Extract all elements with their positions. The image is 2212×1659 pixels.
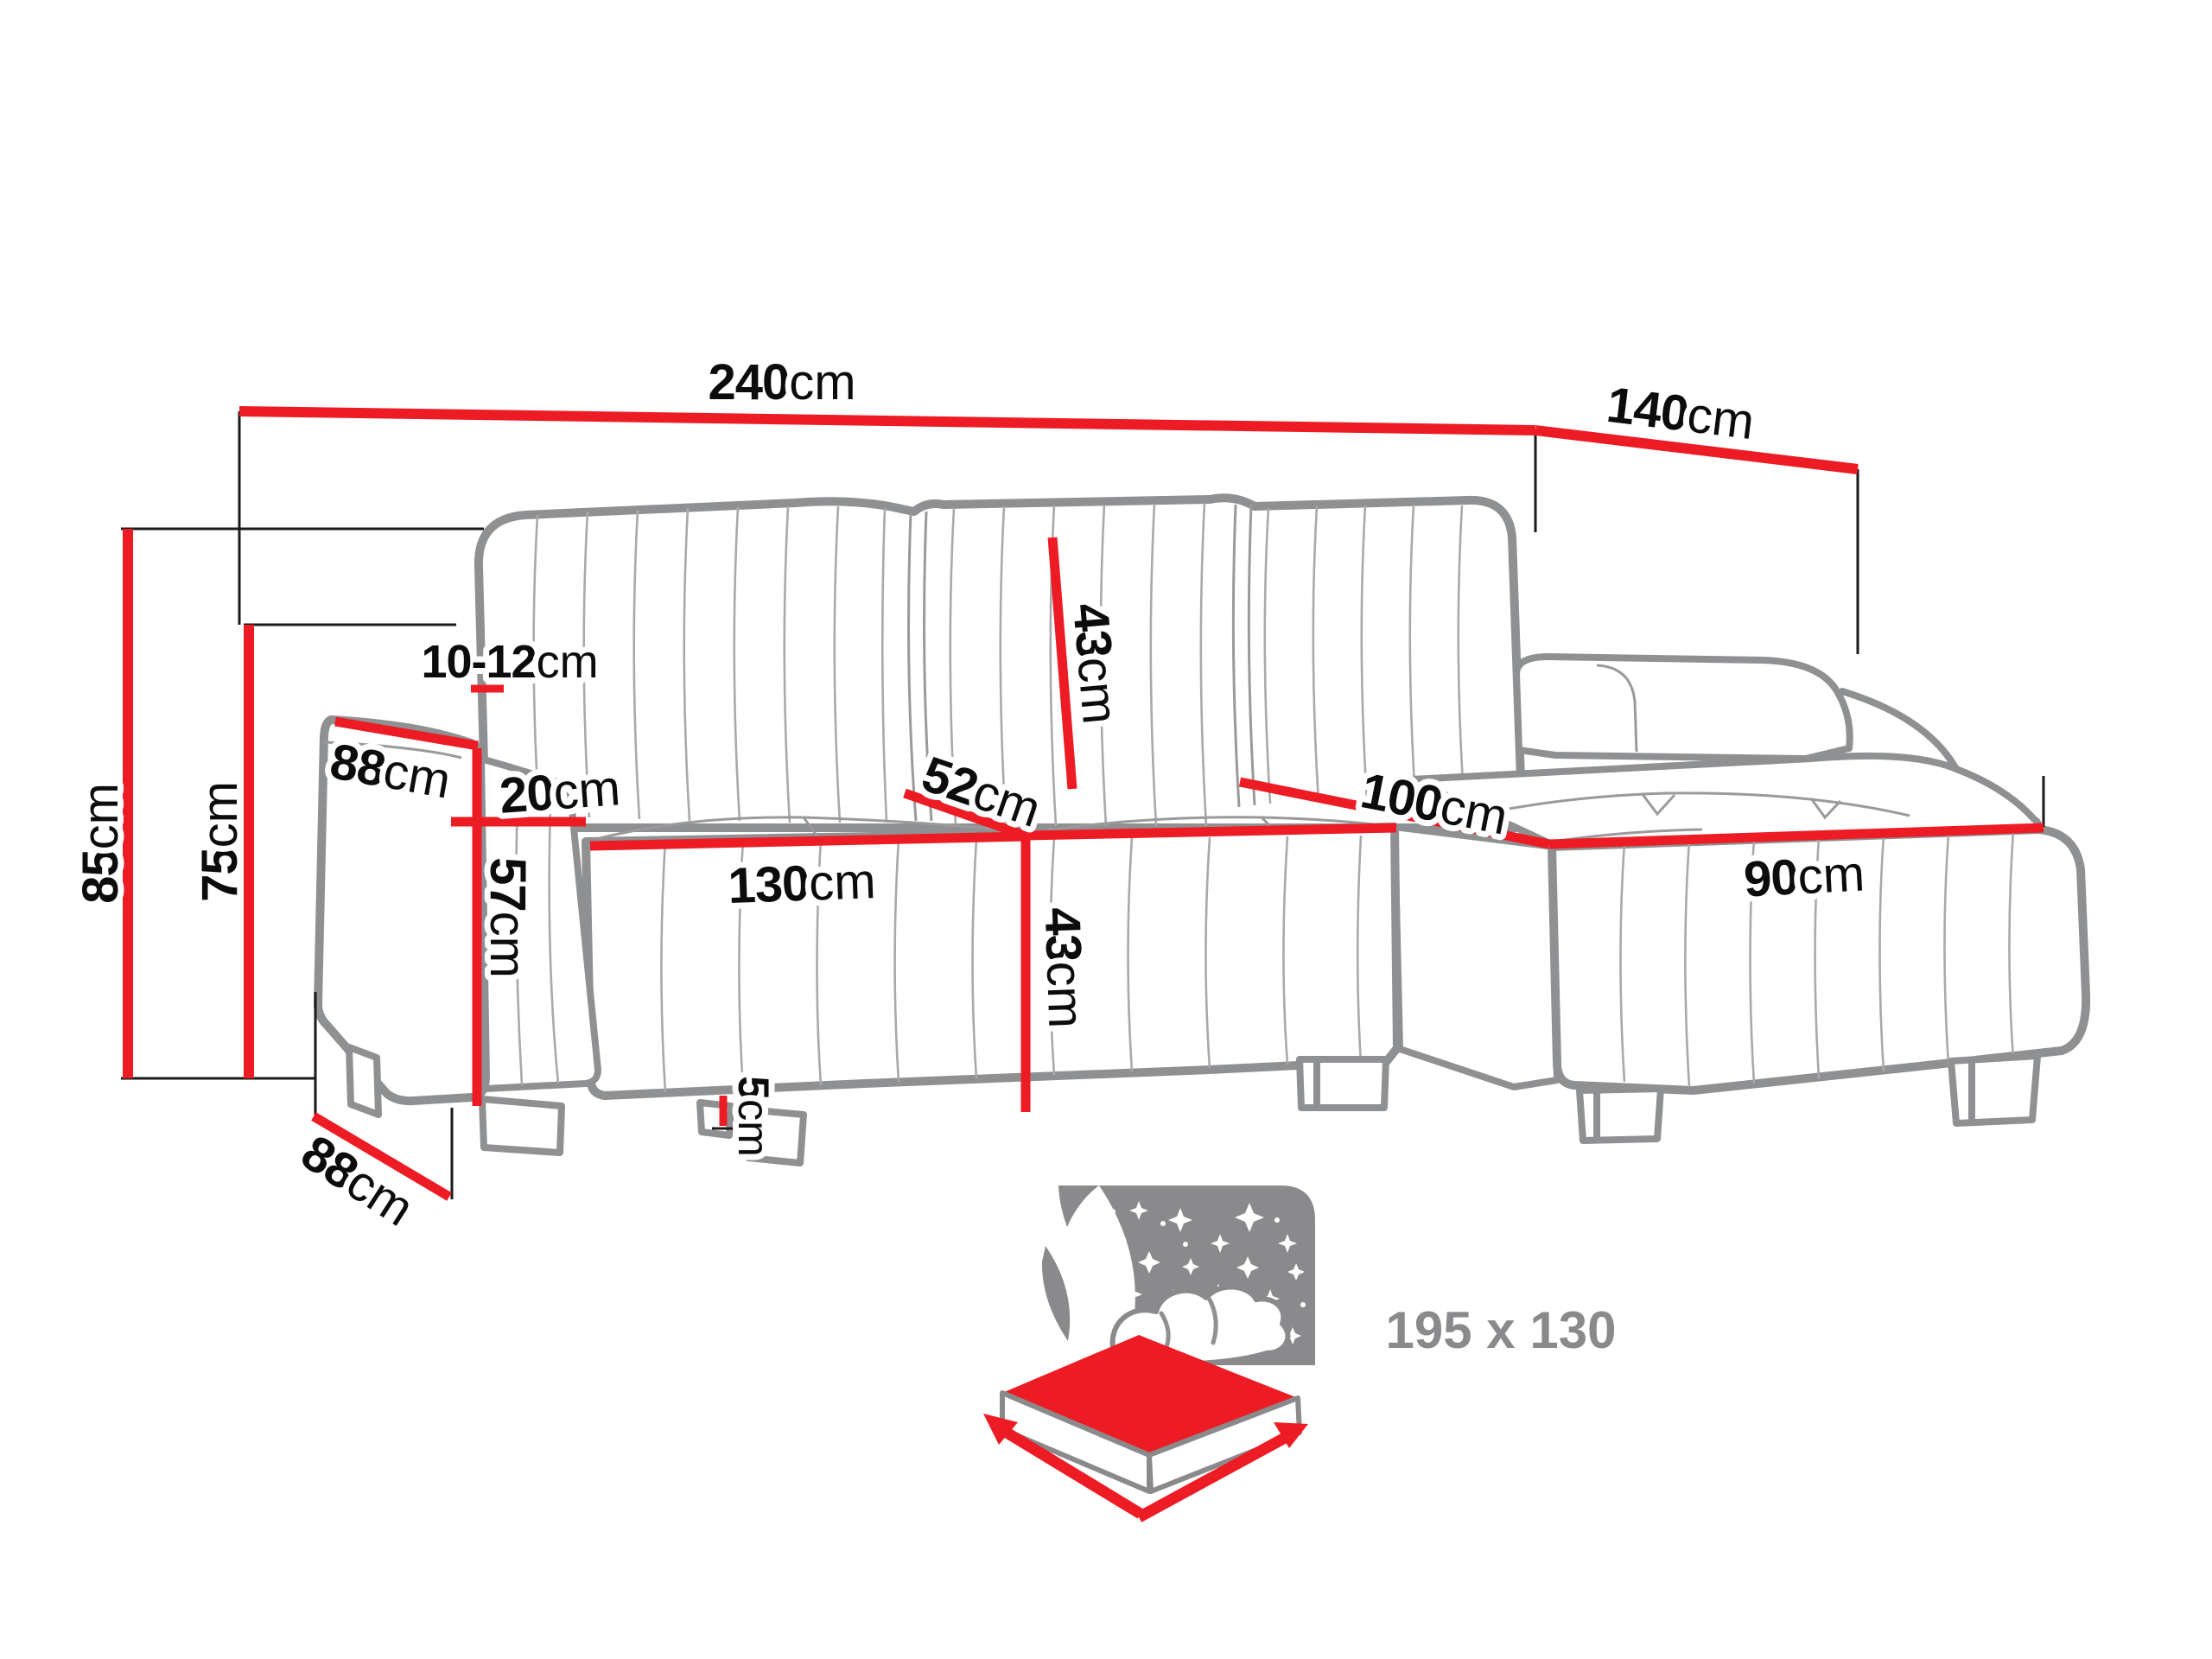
sofa-dimension-diagram: 240cm 140cm 85cm 75cm 10-12cm 88cm 20cm …: [0, 0, 2212, 1659]
label-armrest-height: 75cm: [192, 781, 248, 902]
label-chaise-width: 90cm: [1742, 845, 1866, 907]
sleeping-function-icon: 195 x 130: [983, 1185, 1616, 1517]
diagram-canvas: 240cm 140cm 85cm 75cm 10-12cm 88cm 20cm …: [0, 0, 2212, 1659]
night-crescent: [1042, 1246, 1070, 1341]
seat-chaise-join: [1395, 827, 1557, 1087]
label-total-height: 85cm: [73, 783, 129, 904]
label-leg-height: 5cm: [729, 1076, 778, 1156]
label-total-width: 240cm: [708, 354, 855, 410]
sleeping-size-label: 195 x 130: [1386, 1301, 1617, 1359]
label-seat-front-height: 43cm: [1034, 906, 1095, 1029]
label-seat-width: 130cm: [727, 853, 876, 914]
dim-line-total-width: [239, 411, 1535, 430]
label-armrest-width: 20cm: [498, 760, 622, 824]
label-armrest-front-height: 57cm: [480, 857, 537, 978]
label-backrest-height: 43cm: [1063, 601, 1129, 727]
chaise-back-bar: [1516, 657, 1850, 759]
label-back-gap: 10-12cm: [421, 636, 598, 688]
seat-front: [586, 827, 1397, 1096]
